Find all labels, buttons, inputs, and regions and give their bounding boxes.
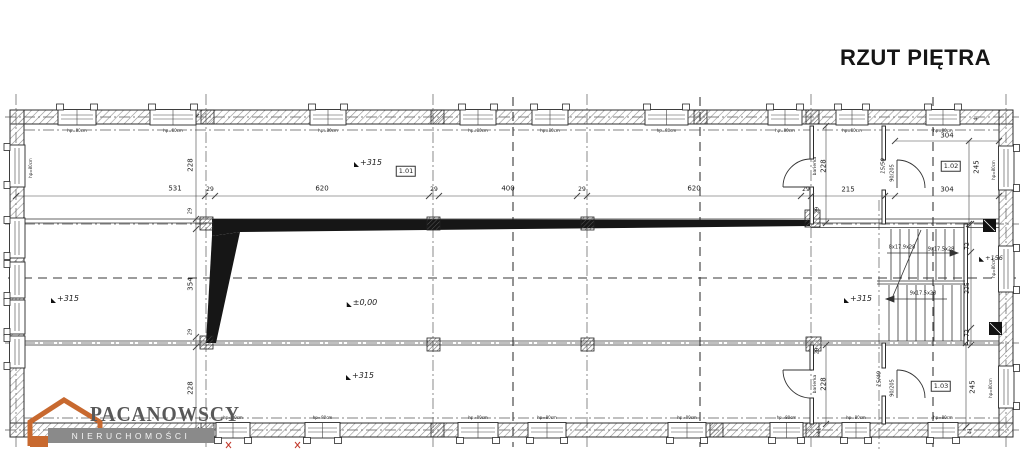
scan-artifacts: [226, 442, 300, 448]
staircase: [877, 229, 965, 341]
wall-columns: [201, 110, 819, 437]
logo-name: PACANOWSCY: [90, 402, 240, 427]
floor-plan-drawing: [0, 0, 1024, 451]
floor-plan-page: RZUT PIĘTRA: [0, 0, 1024, 451]
windows: [4, 104, 1020, 444]
reinforced-wall: [206, 219, 810, 343]
interior-guide-lines: [24, 219, 999, 345]
logo-subtitle: NIERUCHOMOŚCI: [48, 428, 214, 443]
outer-walls: [10, 110, 1013, 437]
dimension-lines: [13, 110, 1006, 437]
partition-walls: [810, 126, 968, 424]
agency-logo: PACANOWSCY NIERUCHOMOŚCI: [22, 394, 222, 450]
